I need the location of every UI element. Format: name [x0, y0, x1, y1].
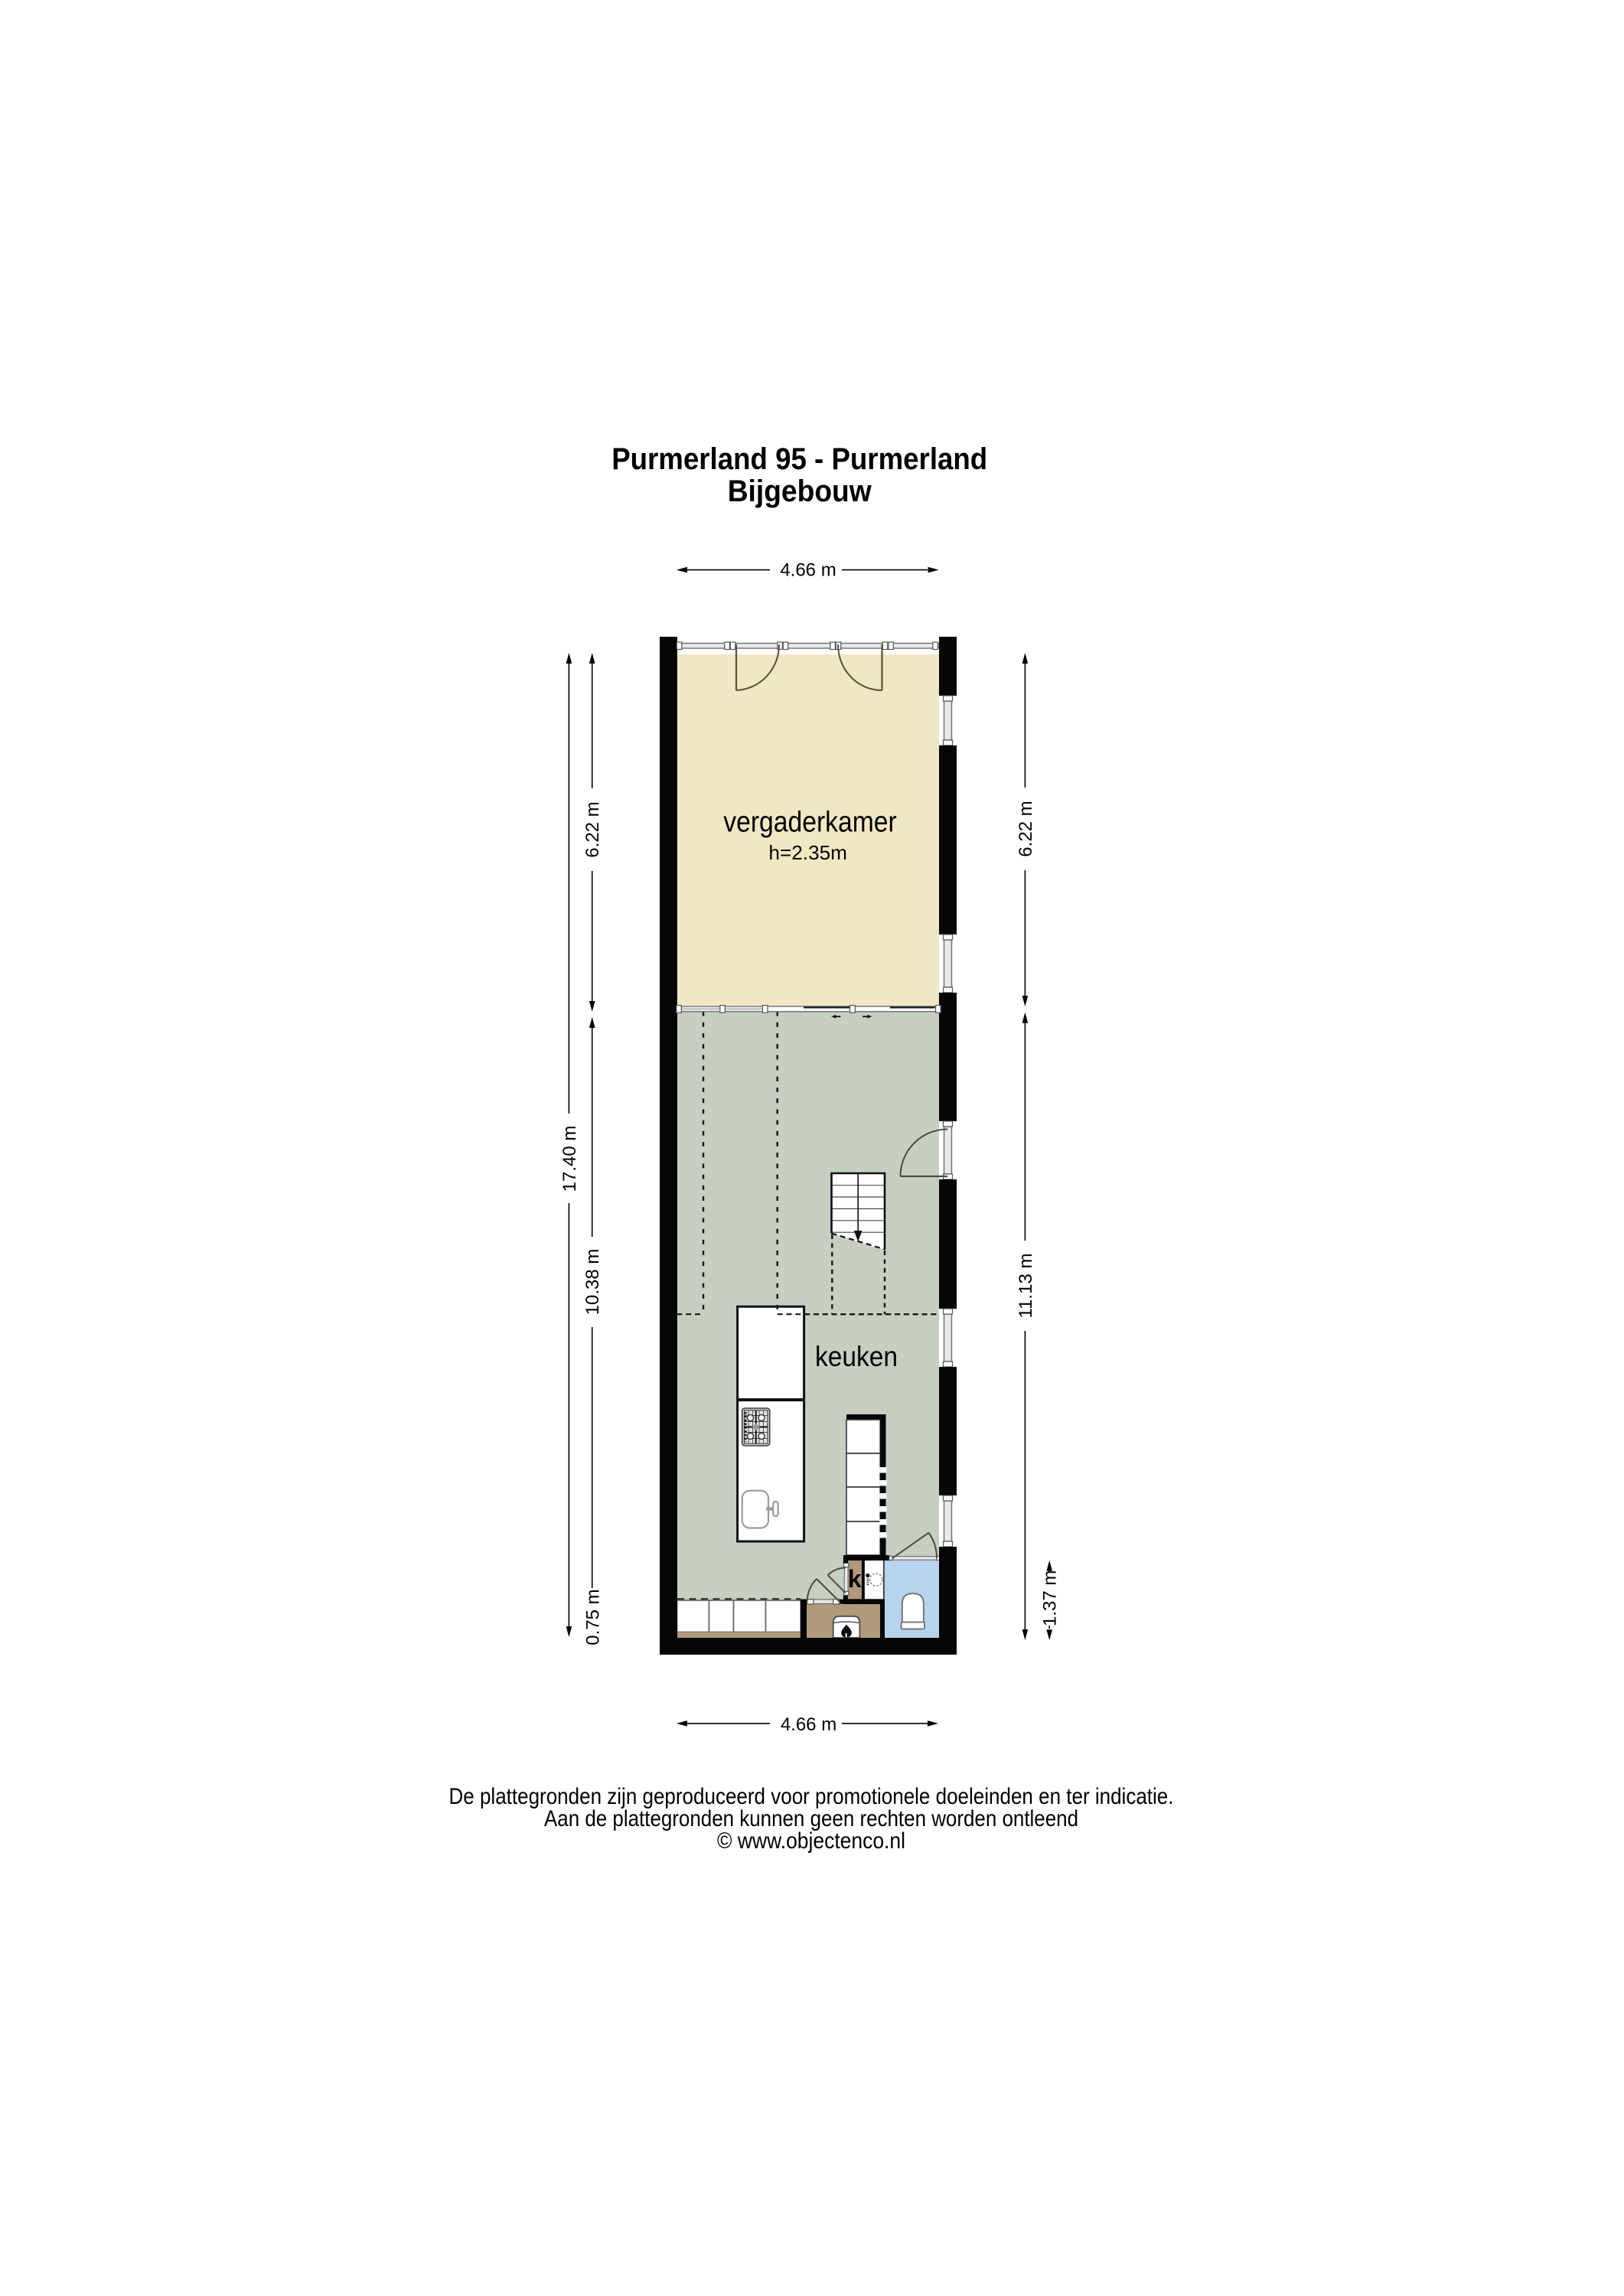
svg-text:10.38 m: 10.38 m: [582, 1249, 603, 1316]
svg-text:4.66 m: 4.66 m: [781, 1714, 836, 1735]
svg-text:vergaderkamer: vergaderkamer: [723, 807, 897, 839]
svg-text:© www.objectenco.nl: © www.objectenco.nl: [717, 1828, 905, 1854]
svg-text:Bijgebouw: Bijgebouw: [728, 475, 872, 508]
svg-text:1.37 m: 1.37 m: [1040, 1570, 1061, 1626]
svg-text:6.22 m: 6.22 m: [582, 801, 603, 857]
svg-text:17.40 m: 17.40 m: [559, 1126, 580, 1192]
svg-text:4.66 m: 4.66 m: [780, 560, 836, 581]
svg-text:0.75 m: 0.75 m: [583, 1589, 604, 1645]
svg-text:Purmerland 95 - Purmerland: Purmerland 95 - Purmerland: [611, 442, 987, 476]
svg-text:keuken: keuken: [815, 1341, 898, 1372]
svg-text:11.13 m: 11.13 m: [1016, 1254, 1036, 1319]
svg-text:h=2.35m: h=2.35m: [768, 841, 847, 864]
svg-text:k: k: [848, 1565, 862, 1593]
svg-text:6.22 m: 6.22 m: [1016, 801, 1036, 856]
